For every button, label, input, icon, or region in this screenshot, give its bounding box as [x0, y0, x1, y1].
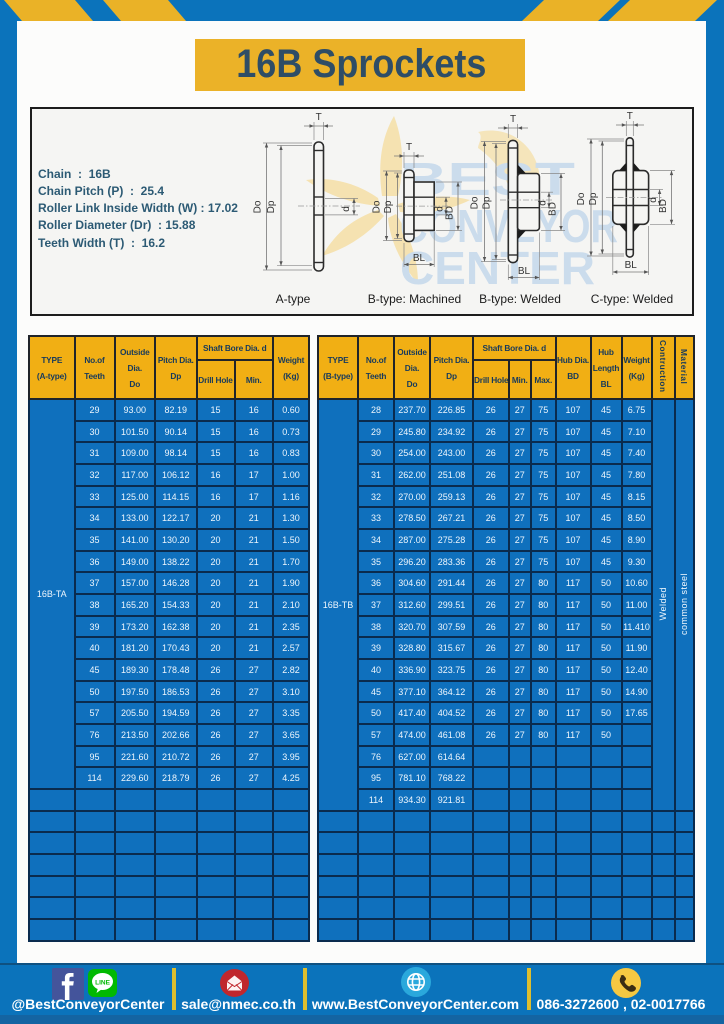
svg-text:BD: BD — [445, 206, 456, 220]
svg-text:BL: BL — [625, 260, 638, 271]
svg-text:C-type: Welded: C-type: Welded — [591, 292, 673, 306]
svg-text:BL: BL — [518, 266, 531, 277]
svg-text:Do: Do — [470, 196, 481, 209]
svg-text:Dp: Dp — [482, 196, 493, 209]
svg-text:T: T — [406, 142, 412, 153]
svg-text:BL: BL — [413, 253, 426, 264]
svg-text:LINE: LINE — [95, 980, 110, 987]
svg-text:Dp: Dp — [383, 200, 394, 213]
svg-text:Do: Do — [576, 192, 587, 205]
svg-text:d: d — [341, 206, 352, 212]
svg-text:T: T — [316, 112, 322, 123]
svg-text:T: T — [510, 114, 516, 125]
svg-text:Do: Do — [372, 200, 383, 213]
svg-text:CENTER: CENTER — [400, 242, 595, 294]
svg-text:BD: BD — [548, 202, 559, 216]
svg-text:B-type: Machined: B-type: Machined — [368, 292, 461, 306]
svg-text:T: T — [627, 111, 633, 122]
svg-text:Dp: Dp — [266, 200, 277, 213]
svg-text:BD: BD — [658, 199, 669, 213]
svg-text:Dp: Dp — [588, 192, 599, 205]
svg-text:Do: Do — [253, 200, 264, 213]
svg-text:A-type: A-type — [276, 292, 311, 306]
svg-text:B-type: Welded: B-type: Welded — [479, 292, 561, 306]
